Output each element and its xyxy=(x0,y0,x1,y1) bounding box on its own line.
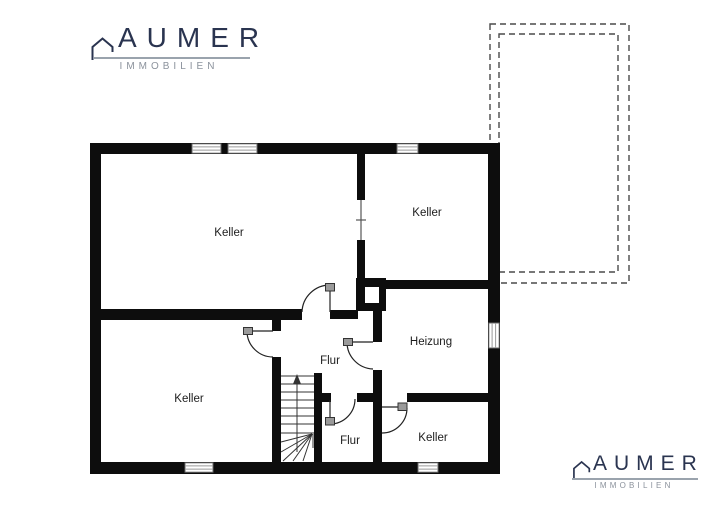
window-icon xyxy=(228,144,257,153)
window-icon xyxy=(192,144,221,153)
door-icon xyxy=(326,399,356,425)
staircase xyxy=(281,374,314,461)
room-label-keller-main: Keller xyxy=(214,227,244,239)
window-icon xyxy=(489,323,499,348)
floor-plan-svg: Keller Keller Heizung Flur Keller Flur K… xyxy=(0,0,720,508)
room-label-flur-mid: Flur xyxy=(320,355,340,367)
chimney-shaft xyxy=(356,278,386,311)
window-icon xyxy=(185,463,213,472)
door-icon xyxy=(382,403,407,433)
stair-direction-arrow xyxy=(293,374,301,452)
floor-plan-page: AUMER IMMOBILIEN AUMER IMMOBILIEN xyxy=(0,0,720,508)
wall-opening-line xyxy=(356,200,366,240)
room-label-keller-bottom-left: Keller xyxy=(174,393,204,405)
window-icon xyxy=(397,144,418,153)
dashed-annex-outline xyxy=(490,24,629,283)
room-label-keller-top-right: Keller xyxy=(412,207,442,219)
room-label-flur-bottom: Flur xyxy=(340,435,360,447)
window-symbols xyxy=(185,144,499,472)
door-icon xyxy=(302,284,335,313)
door-icon xyxy=(244,328,274,358)
window-icon xyxy=(418,463,438,472)
room-label-keller-bottom-right: Keller xyxy=(418,432,448,444)
door-icon xyxy=(344,339,374,370)
room-label-heizung: Heizung xyxy=(410,336,452,348)
